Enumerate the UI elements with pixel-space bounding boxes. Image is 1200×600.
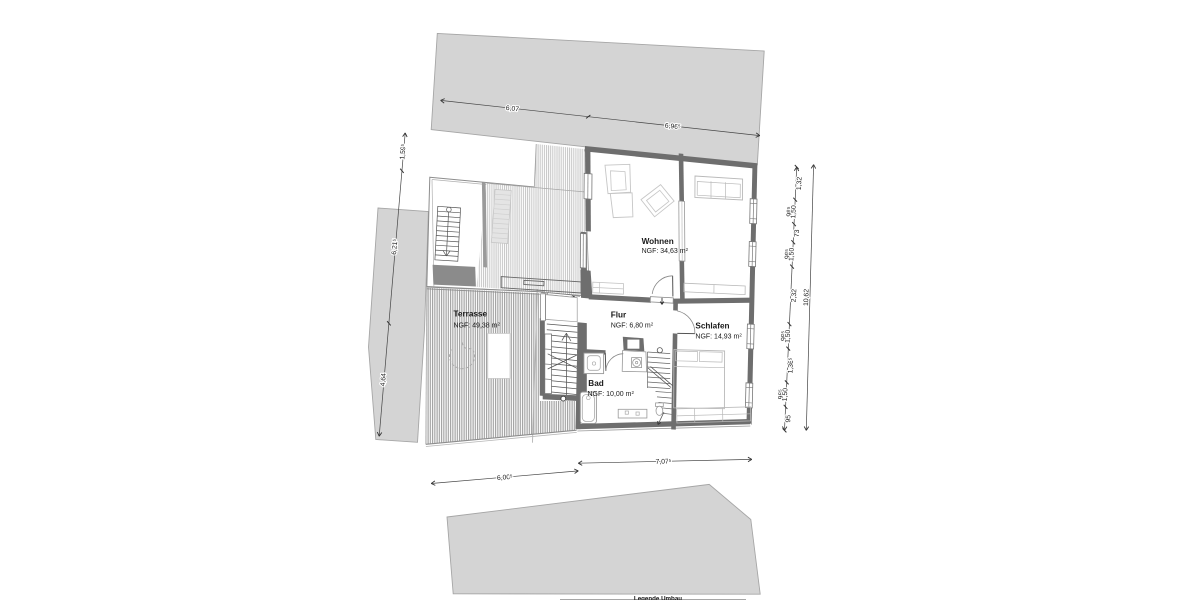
svg-text:1,32: 1,32 xyxy=(796,177,804,191)
svg-text:NGF: 14,93 m2: NGF: 14,93 m2 xyxy=(695,332,742,340)
svg-text:1,50: 1,50 xyxy=(782,388,790,402)
svg-text:Schlafen: Schlafen xyxy=(695,322,729,331)
svg-text:1,595: 1,595 xyxy=(399,143,408,160)
svg-text:NGF: 10,00 m2: NGF: 10,00 m2 xyxy=(588,390,635,398)
svg-text:1,50: 1,50 xyxy=(790,205,798,219)
svg-text:1,50: 1,50 xyxy=(788,247,796,261)
svg-text:NGF: 49,38 m2: NGF: 49,38 m2 xyxy=(454,321,501,329)
svg-text:1,365: 1,365 xyxy=(787,357,795,374)
svg-text:95: 95 xyxy=(785,415,792,423)
svg-text:Terrasse: Terrasse xyxy=(454,310,488,319)
svg-text:Legende Umbau: Legende Umbau xyxy=(634,595,682,600)
svg-text:NGF: 6,80 m2: NGF: 6,80 m2 xyxy=(611,322,654,330)
svg-text:4,64: 4,64 xyxy=(380,373,388,387)
svg-text:6,005: 6,005 xyxy=(497,473,514,482)
svg-text:Bad: Bad xyxy=(588,379,603,388)
svg-text:7,075: 7,075 xyxy=(655,458,671,466)
svg-text:10,62: 10,62 xyxy=(803,289,810,306)
svg-text:6,07: 6,07 xyxy=(505,105,519,113)
svg-text:73: 73 xyxy=(794,229,801,237)
svg-text:2,32: 2,32 xyxy=(791,289,799,303)
svg-text:Flur: Flur xyxy=(611,311,627,320)
svg-text:Wohnen: Wohnen xyxy=(642,237,674,246)
svg-text:1,50: 1,50 xyxy=(784,329,792,343)
svg-text:NGF: 34,63 m2: NGF: 34,63 m2 xyxy=(642,247,689,255)
